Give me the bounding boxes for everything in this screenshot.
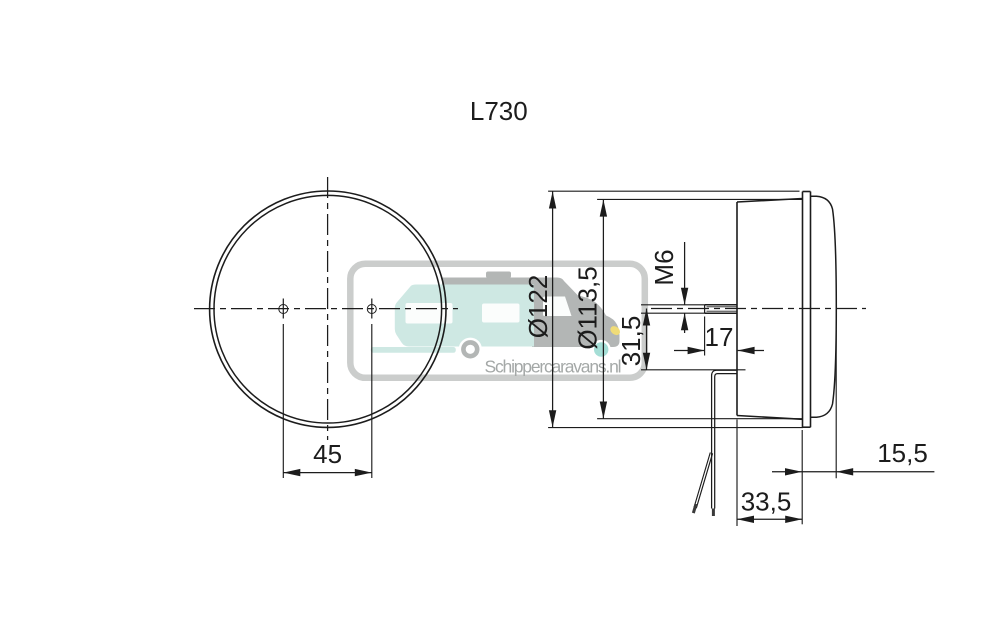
svg-text:15,5: 15,5 <box>877 438 928 468</box>
svg-text:M6: M6 <box>649 249 679 285</box>
svg-text:45: 45 <box>313 439 342 469</box>
svg-text:Ø122: Ø122 <box>523 275 553 339</box>
svg-text:L730: L730 <box>470 96 528 126</box>
svg-text:17: 17 <box>705 322 734 352</box>
svg-text:Ø113,5: Ø113,5 <box>573 266 603 349</box>
svg-text:33,5: 33,5 <box>741 487 792 517</box>
svg-text:31,5: 31,5 <box>616 316 646 367</box>
